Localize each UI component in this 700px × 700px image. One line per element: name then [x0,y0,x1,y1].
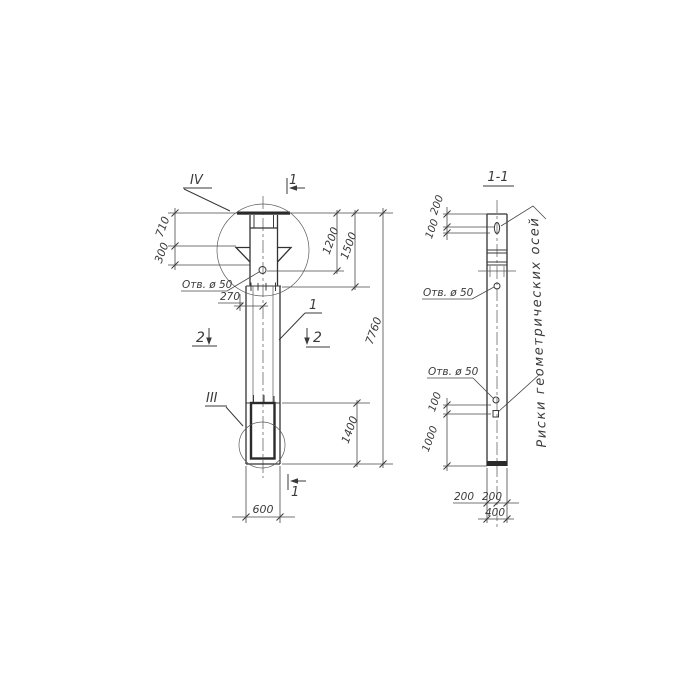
section-view: 1-1 200 100 100 1000 [420,170,550,530]
barb-right [278,248,292,263]
dim-200-top-text: 200 [428,193,446,216]
barb-left [236,248,250,263]
axis-note-text: Риски геометрических осей [527,216,550,448]
section-marker-1-bottom-label: 1 [291,485,299,500]
hole-lower-section [493,397,499,403]
dim-1200-text: 1200 [320,225,342,256]
dim-710-text: 710 [153,215,172,239]
top-plate [237,212,290,215]
section-bottom-dims: 200 200 400 [453,468,519,523]
head-collar-lines [254,215,274,228]
dim-200-right-text: 200 [482,491,502,503]
dim-7760-text: 7760 [363,315,385,346]
detail-marker-iii-leader [205,406,243,426]
section-marker-1-top-label: 1 [289,173,297,188]
detail-marker-iv: IV [190,173,204,188]
section-marker-2-left-label: 2 [196,330,205,346]
hole-note-elevation: Отв. ø 50 [181,272,259,291]
axis-note: Риски геометрических осей [498,206,550,448]
dim-270-text: 270 [220,291,240,303]
dim-400-text: 400 [485,507,505,519]
dim-600: 600 [232,466,295,523]
detail-marker-iii: III [206,391,218,406]
dim-100-top-text: 100 [423,217,441,240]
section-bottom-end [487,461,507,466]
hole-note-elevation-text: Отв. ø 50 [182,279,233,291]
dim-300-text: 300 [152,241,171,265]
dim-600-text: 600 [253,503,274,516]
dim-1000-text: 1000 [420,424,441,454]
hole-upper-elevation [259,267,266,274]
dim-200-left-text: 200 [454,491,474,503]
dim-270: 270 [218,291,268,311]
section-marker-1-bottom: 1 [288,474,306,500]
section-marker-1-top: 1 [287,173,305,194]
hole-note-upper-text: Отв. ø 50 [423,287,474,299]
pile-drawing: IV III 1 1 2 2 1 [0,0,700,700]
section-mid-dims: 100 1000 [420,390,491,471]
axis-mark-square [493,411,499,418]
upper-joint [246,283,281,292]
hole-note-upper-section: Отв. ø 50 [422,287,494,299]
section-marker-2-left: 2 [192,328,217,346]
elevation-view: IV III 1 1 2 2 1 [152,173,393,523]
section-title: 1-1 [487,170,508,185]
detail-marker-iv-leader [183,188,230,211]
section-marker-2-right-label: 2 [313,330,322,346]
piece-mark-label: 1 [309,298,317,313]
section-marker-2-right: 2 [304,328,330,347]
dim-1500-text: 1500 [338,230,360,261]
section-top-dims: 200 100 [423,193,494,240]
drawing-sheet: IV III 1 1 2 2 1 [0,0,700,700]
dim-100-mid-text: 100 [426,390,444,413]
hole-note-lower-text: Отв. ø 50 [428,366,479,378]
